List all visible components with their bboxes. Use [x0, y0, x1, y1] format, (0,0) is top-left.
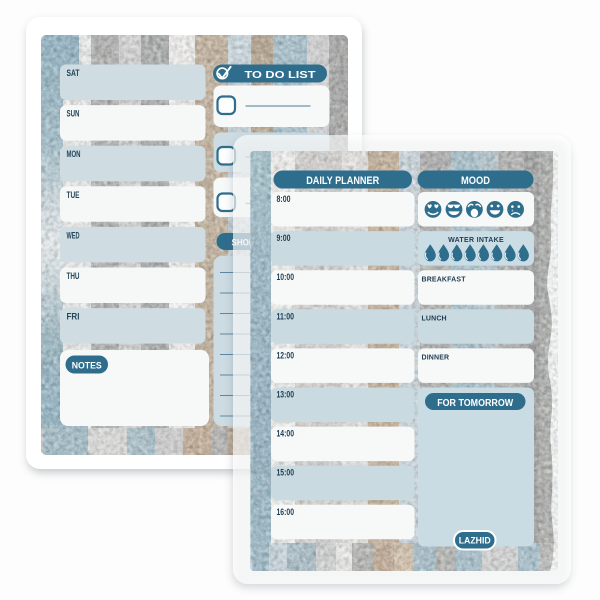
svg-text:WATER INTAKE: WATER INTAKE	[448, 237, 504, 244]
svg-text:15:00: 15:00	[277, 467, 295, 478]
svg-text:LAZHID: LAZHID	[459, 536, 491, 546]
svg-text:8:00: 8:00	[277, 193, 291, 204]
svg-text:WED: WED	[67, 229, 80, 240]
svg-text:10:00: 10:00	[277, 271, 295, 282]
svg-text:BREAKFAST: BREAKFAST	[422, 276, 467, 283]
svg-text:THU: THU	[67, 270, 80, 281]
svg-text:TUE: TUE	[67, 189, 80, 200]
svg-text:FRI: FRI	[67, 311, 80, 322]
svg-text:11:00: 11:00	[277, 310, 295, 321]
svg-text:FOR TOMORROW: FOR TOMORROW	[437, 398, 513, 409]
svg-text:MON: MON	[67, 148, 81, 159]
svg-text:12:00: 12:00	[277, 349, 295, 360]
svg-text:MOOD: MOOD	[461, 175, 490, 187]
svg-text:LUNCH: LUNCH	[422, 315, 447, 322]
svg-text:NOTES: NOTES	[72, 361, 102, 371]
svg-text:TO DO LIST: TO DO LIST	[245, 70, 317, 81]
svg-text:13:00: 13:00	[277, 389, 295, 400]
svg-text:SUN: SUN	[67, 108, 80, 119]
svg-text:9:00: 9:00	[277, 232, 291, 243]
svg-text:DINNER: DINNER	[422, 355, 450, 362]
svg-text:DAILY PLANNER: DAILY PLANNER	[306, 175, 379, 187]
svg-text:14:00: 14:00	[277, 428, 295, 439]
svg-text:SAT: SAT	[67, 67, 80, 78]
svg-text:16:00: 16:00	[277, 506, 295, 517]
